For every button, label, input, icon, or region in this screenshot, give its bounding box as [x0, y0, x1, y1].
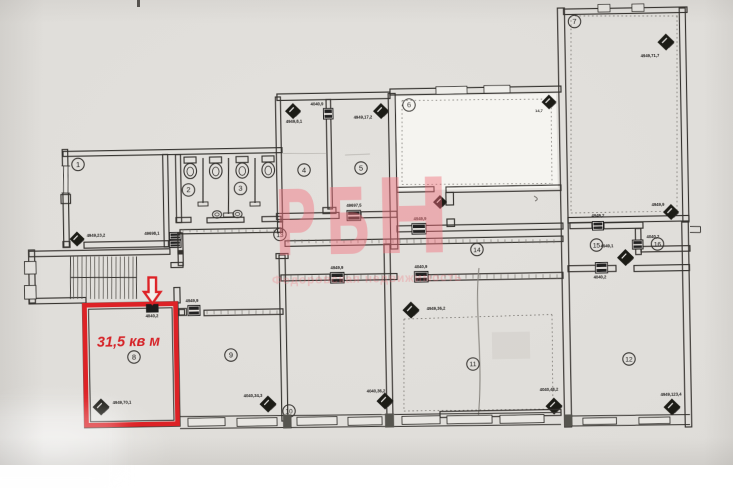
- svg-text:8: 8: [132, 352, 136, 361]
- svg-text:6: 6: [407, 100, 411, 109]
- svg-text:Н: Н: [376, 156, 448, 275]
- svg-text:4949,9: 4949,9: [186, 298, 200, 303]
- svg-text:Б: Б: [327, 168, 370, 273]
- svg-text:3: 3: [238, 184, 242, 193]
- svg-text:31,5 кв м: 31,5 кв м: [97, 334, 161, 351]
- svg-text:Р: Р: [276, 171, 317, 274]
- svg-text:4949,70,1: 4949,70,1: [113, 400, 132, 405]
- svg-text:11: 11: [469, 361, 476, 368]
- svg-text:4040,2: 4040,2: [594, 274, 608, 279]
- svg-text:14,7: 14,7: [535, 108, 544, 113]
- svg-text:4949,17,2: 4949,17,2: [354, 114, 373, 119]
- svg-text:4949,9: 4949,9: [652, 202, 666, 207]
- svg-text:4040,2: 4040,2: [146, 313, 160, 318]
- svg-text:49698,1: 49698,1: [144, 231, 160, 236]
- svg-text:14: 14: [473, 247, 481, 254]
- svg-text:9: 9: [229, 350, 233, 359]
- svg-text:7: 7: [572, 17, 576, 26]
- svg-text:Федоровская недвижимость: Федоровская недвижимость: [272, 270, 463, 287]
- svg-text:4949,71,7: 4949,71,7: [641, 53, 660, 58]
- svg-text:2: 2: [186, 185, 190, 194]
- svg-text:15: 15: [593, 242, 601, 249]
- svg-text:1: 1: [76, 160, 80, 169]
- svg-text:4949,123,4: 4949,123,4: [660, 392, 682, 397]
- svg-text:4949,36,2: 4949,36,2: [427, 306, 446, 311]
- svg-text:4040,36,2: 4040,36,2: [367, 388, 386, 393]
- svg-text:12: 12: [625, 356, 633, 363]
- svg-text:4040,34,3: 4040,34,3: [244, 393, 263, 398]
- svg-text:4040,48,2: 4040,48,2: [540, 387, 559, 392]
- svg-text:4949,23,2: 4949,23,2: [87, 233, 106, 238]
- svg-text:4949,8,1: 4949,8,1: [286, 119, 303, 124]
- svg-text:4949,2: 4949,2: [592, 213, 606, 218]
- svg-text:4040,9: 4040,9: [311, 101, 325, 106]
- svg-text:10: 10: [285, 408, 293, 415]
- svg-text:16: 16: [654, 241, 662, 248]
